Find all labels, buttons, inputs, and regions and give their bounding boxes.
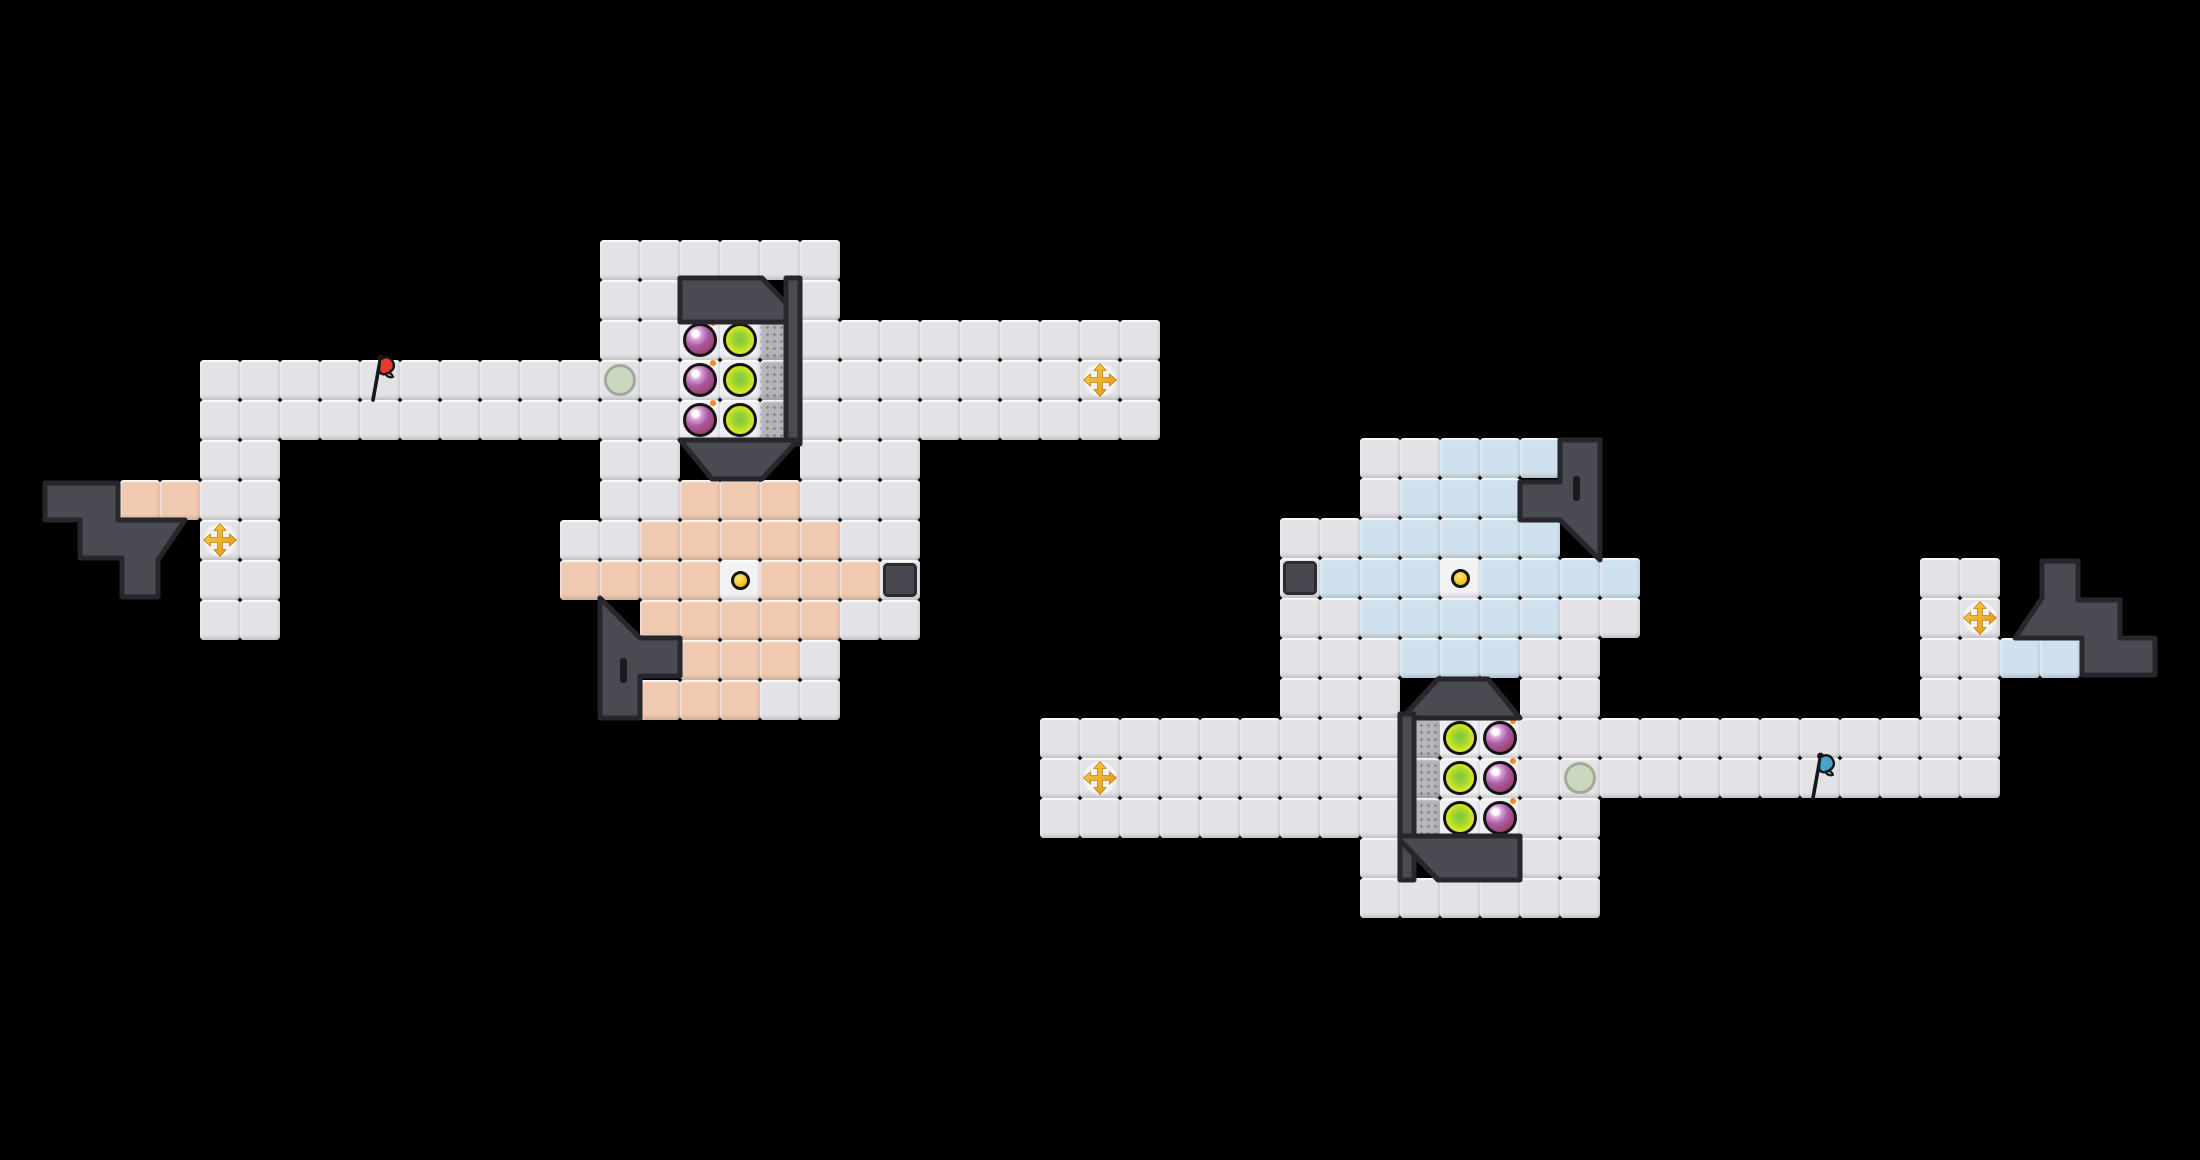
door-icon xyxy=(883,563,917,597)
blue-floor-tile xyxy=(1480,438,1520,478)
floor-tile xyxy=(1040,758,1080,798)
blue-floor-tile xyxy=(1400,638,1440,678)
floor-tile xyxy=(1560,638,1600,678)
blue-floor-tile xyxy=(1360,558,1400,598)
floor-tile xyxy=(1360,678,1400,718)
button-orb-icon xyxy=(723,403,757,437)
floor-tile xyxy=(800,280,840,320)
floor-tile xyxy=(1320,638,1360,678)
floor-tile xyxy=(240,360,280,400)
blue-floor-tile xyxy=(1360,598,1400,638)
floor-tile xyxy=(960,400,1000,440)
button-orb[interactable] xyxy=(720,400,760,440)
floor-tile xyxy=(960,360,1000,400)
flag-red[interactable] xyxy=(358,348,402,404)
floor-tile xyxy=(200,480,240,520)
floor-tile xyxy=(400,400,440,440)
blue-floor-tile xyxy=(1480,638,1520,678)
floor-tile xyxy=(1120,718,1160,758)
floor-tile xyxy=(640,320,680,360)
floor-tile xyxy=(520,400,560,440)
floor-tile xyxy=(1880,718,1920,758)
floor-tile xyxy=(1520,638,1560,678)
pink-floor-tile xyxy=(120,480,160,520)
pink-floor-tile xyxy=(680,600,720,640)
bomb-orb[interactable] xyxy=(680,320,720,360)
floor-tile xyxy=(1680,718,1720,758)
floor-tile xyxy=(1720,758,1760,798)
pink-floor-tile xyxy=(680,640,720,680)
wall-slit xyxy=(1573,476,1580,501)
pink-floor-tile xyxy=(720,640,760,680)
blue-floor-tile xyxy=(1480,598,1520,638)
floor-tile xyxy=(1920,758,1960,798)
target-dot-tile[interactable] xyxy=(1440,558,1480,598)
door-tile[interactable] xyxy=(1280,558,1320,598)
pink-floor-tile xyxy=(760,480,800,520)
floor-tile xyxy=(1880,758,1920,798)
floor-tile xyxy=(240,440,280,480)
spawn-pad-circle xyxy=(1564,762,1596,794)
floor-tile xyxy=(1560,878,1600,918)
pink-floor-tile xyxy=(640,600,680,640)
move-cross-icon[interactable] xyxy=(1080,360,1120,400)
spawn-pad[interactable] xyxy=(604,364,636,396)
floor-tile xyxy=(1760,758,1800,798)
floor-tile xyxy=(840,480,880,520)
bomb-orb[interactable] xyxy=(1480,798,1520,838)
bomb-orb-icon xyxy=(683,323,717,357)
pink-floor-tile xyxy=(680,560,720,600)
bomb-orb[interactable] xyxy=(1480,718,1520,758)
floor-tile xyxy=(1360,838,1400,878)
floor-tile xyxy=(1720,718,1760,758)
floor-tile xyxy=(1040,718,1080,758)
floor-tile xyxy=(1520,718,1560,758)
move-cross-icon[interactable] xyxy=(1080,758,1120,798)
floor-tile xyxy=(960,320,1000,360)
pink-floor-tile xyxy=(680,680,720,720)
pink-floor-tile xyxy=(640,680,680,720)
machine-top-wall xyxy=(680,278,800,322)
floor-tile xyxy=(240,560,280,600)
floor-tile xyxy=(1520,838,1560,878)
spawn-pad[interactable] xyxy=(1564,762,1596,794)
floor-tile xyxy=(1520,798,1560,838)
button-orb[interactable] xyxy=(1440,798,1480,838)
floor-tile xyxy=(600,320,640,360)
floor-tile xyxy=(200,600,240,640)
floor-tile xyxy=(1600,758,1640,798)
bomb-orb-icon xyxy=(1483,761,1517,795)
floor-tile xyxy=(1160,798,1200,838)
button-orb-icon xyxy=(723,363,757,397)
pink-floor-tile xyxy=(760,640,800,680)
floor-tile xyxy=(280,360,320,400)
floor-tile xyxy=(760,680,800,720)
pink-floor-tile xyxy=(720,480,760,520)
floor-tile xyxy=(920,360,960,400)
floor-tile xyxy=(520,360,560,400)
floor-tile xyxy=(1320,758,1360,798)
floor-tile xyxy=(400,360,440,400)
floor-tile xyxy=(1200,758,1240,798)
pink-floor-tile xyxy=(560,560,600,600)
blue-floor-tile xyxy=(1320,558,1360,598)
floor-tile xyxy=(1120,798,1160,838)
floor-tile xyxy=(240,480,280,520)
floor-tile xyxy=(880,320,920,360)
floor-tile xyxy=(600,400,640,440)
floor-tile xyxy=(1120,320,1160,360)
floor-tile xyxy=(560,400,600,440)
floor-tile xyxy=(640,280,680,320)
floor-tile xyxy=(1760,718,1800,758)
floor-tile xyxy=(1120,400,1160,440)
floor-tile xyxy=(840,400,880,440)
floor-tile xyxy=(560,360,600,400)
floor-tile xyxy=(800,400,840,440)
floor-tile xyxy=(800,640,840,680)
bomb-orb[interactable] xyxy=(680,400,720,440)
floor-tile xyxy=(1560,798,1600,838)
flag-blue[interactable] xyxy=(1798,746,1842,802)
blue-floor-tile xyxy=(1440,638,1480,678)
floor-tile xyxy=(600,520,640,560)
floor-tile xyxy=(1400,438,1440,478)
floor-tile xyxy=(1360,438,1400,478)
floor-tile xyxy=(1360,718,1400,758)
floor-tile xyxy=(1080,320,1120,360)
blue-floor-tile xyxy=(1400,598,1440,638)
floor-tile xyxy=(640,440,680,480)
floor-tile xyxy=(880,520,920,560)
floor-tile xyxy=(1920,598,1960,638)
floor-tile xyxy=(560,520,600,560)
floor-tile xyxy=(840,320,880,360)
floor-tile xyxy=(840,600,880,640)
pink-floor-tile xyxy=(160,480,200,520)
pink-floor-tile xyxy=(800,520,840,560)
floor-tile xyxy=(1280,798,1320,838)
floor-tile xyxy=(1040,320,1080,360)
floor-tile xyxy=(920,320,960,360)
floor-tile xyxy=(1080,718,1120,758)
floor-tile xyxy=(840,360,880,400)
floor-tile xyxy=(1560,718,1600,758)
floor-tile xyxy=(1960,718,2000,758)
floor-tile xyxy=(1960,758,2000,798)
floor-tile xyxy=(680,240,720,280)
floor-tile xyxy=(1600,718,1640,758)
floor-tile xyxy=(880,440,920,480)
spawn-pad-circle xyxy=(604,364,636,396)
floor-tile xyxy=(1280,598,1320,638)
floor-tile xyxy=(280,400,320,440)
pink-floor-tile xyxy=(720,680,760,720)
floor-tile xyxy=(200,440,240,480)
blue-floor-tile xyxy=(2040,638,2080,678)
floor-tile xyxy=(1120,758,1160,798)
floor-tile xyxy=(1360,638,1400,678)
machine-panel-tile xyxy=(1400,758,1440,798)
floor-tile xyxy=(1640,758,1680,798)
floor-tile xyxy=(320,360,360,400)
floor-tile xyxy=(880,480,920,520)
floor-tile xyxy=(1640,718,1680,758)
floor-tile xyxy=(200,360,240,400)
pink-floor-tile xyxy=(640,520,680,560)
floor-tile xyxy=(1000,400,1040,440)
floor-tile xyxy=(720,240,760,280)
blue-floor-tile xyxy=(1520,558,1560,598)
pink-floor-tile xyxy=(800,600,840,640)
target-dot-tile[interactable] xyxy=(720,560,760,600)
machine-bottom-wall xyxy=(1400,836,1520,880)
machine-bottom-wall xyxy=(680,440,798,479)
floor-tile xyxy=(880,360,920,400)
blue-floor-tile xyxy=(1520,598,1560,638)
blue-floor-tile xyxy=(1440,478,1480,518)
blue-floor-tile xyxy=(1560,558,1600,598)
floor-tile xyxy=(800,440,840,480)
floor-tile xyxy=(1280,638,1320,678)
floor-tile xyxy=(1920,678,1960,718)
floor-tile xyxy=(1320,598,1360,638)
blue-floor-tile xyxy=(1520,518,1560,558)
floor-tile xyxy=(1320,718,1360,758)
floor-tile xyxy=(1240,718,1280,758)
blue-floor-tile xyxy=(1520,438,1560,478)
floor-tile xyxy=(920,400,960,440)
floor-tile xyxy=(240,600,280,640)
blue-floor-tile xyxy=(1440,438,1480,478)
floor-tile xyxy=(1360,798,1400,838)
move-cross-icon[interactable] xyxy=(200,520,240,560)
pink-floor-tile xyxy=(720,520,760,560)
floor-tile xyxy=(1320,678,1360,718)
bomb-orb[interactable] xyxy=(680,360,720,400)
floor-tile xyxy=(600,440,640,480)
floor-tile xyxy=(1200,798,1240,838)
floor-tile xyxy=(800,360,840,400)
floor-tile xyxy=(640,240,680,280)
button-orb[interactable] xyxy=(720,360,760,400)
pink-floor-tile xyxy=(760,520,800,560)
wall-structures-right xyxy=(0,0,2200,1160)
floor-tile xyxy=(800,320,840,360)
blue-floor-tile xyxy=(1480,478,1520,518)
button-orb-icon xyxy=(1443,761,1477,795)
floor-tile xyxy=(840,440,880,480)
floor-tile xyxy=(800,240,840,280)
floor-tile xyxy=(640,400,680,440)
floor-tile xyxy=(1040,360,1080,400)
floor-tile xyxy=(800,680,840,720)
floor-tile xyxy=(1320,518,1360,558)
blue-floor-tile xyxy=(1600,558,1640,598)
floor-tile xyxy=(1560,838,1600,878)
floor-tile xyxy=(1480,878,1520,918)
blue-floor-tile xyxy=(1440,518,1480,558)
button-orb[interactable] xyxy=(1440,718,1480,758)
floor-tile xyxy=(1960,678,2000,718)
blue-floor-tile xyxy=(1360,518,1400,558)
blue-floor-tile xyxy=(1480,518,1520,558)
floor-tile xyxy=(1520,878,1560,918)
game-canvas xyxy=(0,0,2200,1160)
floor-tile xyxy=(360,400,400,440)
machine-panel-tile xyxy=(1400,718,1440,758)
floor-tile xyxy=(1000,360,1040,400)
button-orb-icon xyxy=(723,323,757,357)
pink-floor-tile xyxy=(760,600,800,640)
floor-tile xyxy=(240,400,280,440)
floor-tile xyxy=(1560,678,1600,718)
bomb-orb-icon xyxy=(683,363,717,397)
floor-tile xyxy=(1360,758,1400,798)
blue-floor-tile xyxy=(2000,638,2040,678)
floor-tile xyxy=(1920,558,1960,598)
floor-tile xyxy=(1440,878,1480,918)
floor-tile xyxy=(480,400,520,440)
yellow-dot-icon xyxy=(731,571,750,590)
floor-tile xyxy=(1200,718,1240,758)
pink-floor-tile xyxy=(720,600,760,640)
pink-floor-tile xyxy=(640,560,680,600)
floor-tile xyxy=(1520,758,1560,798)
door-icon xyxy=(1283,561,1317,595)
floor-tile xyxy=(1280,678,1320,718)
floor-tile xyxy=(1040,400,1080,440)
floor-tile xyxy=(800,480,840,520)
move-cross-icon[interactable] xyxy=(1960,598,2000,638)
floor-tile xyxy=(600,280,640,320)
bomb-orb-icon xyxy=(1483,801,1517,835)
wall-slit xyxy=(620,658,627,683)
floor-tile xyxy=(240,520,280,560)
floor-tile xyxy=(1040,798,1080,838)
blue-floor-tile xyxy=(1400,478,1440,518)
floor-tile xyxy=(1960,638,2000,678)
floor-tile xyxy=(1920,638,1960,678)
floor-tile xyxy=(1600,598,1640,638)
blue-floor-tile xyxy=(1400,558,1440,598)
floor-tile xyxy=(880,400,920,440)
floor-tile xyxy=(1280,718,1320,758)
floor-tile xyxy=(1840,718,1880,758)
floor-tile xyxy=(440,400,480,440)
machine-panel-tile xyxy=(760,320,800,360)
floor-tile xyxy=(760,240,800,280)
pink-floor-tile xyxy=(680,520,720,560)
floor-tile xyxy=(1960,558,2000,598)
floor-tile xyxy=(1000,320,1040,360)
floor-tile xyxy=(640,360,680,400)
blue-floor-tile xyxy=(1480,558,1520,598)
yellow-dot-icon xyxy=(1451,569,1470,588)
door-tile[interactable] xyxy=(880,560,920,600)
pink-floor-tile xyxy=(840,560,880,600)
floor-tile xyxy=(880,600,920,640)
floor-tile xyxy=(1680,758,1720,798)
floor-tile xyxy=(1560,598,1600,638)
floor-tile xyxy=(1400,878,1440,918)
floor-tile xyxy=(1160,718,1200,758)
button-orb-icon xyxy=(1443,801,1477,835)
floor-tile xyxy=(1840,758,1880,798)
floor-tile xyxy=(440,360,480,400)
floor-tile xyxy=(1080,798,1120,838)
floor-tile xyxy=(320,400,360,440)
floor-tile xyxy=(1080,400,1120,440)
floor-tile xyxy=(1920,718,1960,758)
floor-tile xyxy=(200,560,240,600)
machine-panel-tile xyxy=(760,400,800,440)
floor-tile xyxy=(640,480,680,520)
floor-tile xyxy=(1360,478,1400,518)
floor-tile xyxy=(1240,798,1280,838)
pink-floor-tile xyxy=(760,560,800,600)
bomb-orb-icon xyxy=(1483,721,1517,755)
floor-tile xyxy=(600,240,640,280)
machine-top-wall xyxy=(1402,679,1520,718)
pink-floor-tile xyxy=(600,560,640,600)
floor-tile xyxy=(1320,798,1360,838)
machine-panel-tile xyxy=(760,360,800,400)
floor-tile xyxy=(1280,758,1320,798)
floor-tile xyxy=(200,400,240,440)
wall-structures-left xyxy=(0,0,2200,1160)
floor-tile xyxy=(1120,360,1160,400)
blue-floor-tile xyxy=(1400,518,1440,558)
button-orb[interactable] xyxy=(1440,758,1480,798)
floor-tile xyxy=(1520,678,1560,718)
bomb-orb[interactable] xyxy=(1480,758,1520,798)
floor-tile xyxy=(1240,758,1280,798)
floor-tile xyxy=(1160,758,1200,798)
floor-tile xyxy=(1360,878,1400,918)
floor-tile xyxy=(480,360,520,400)
bomb-orb-icon xyxy=(683,403,717,437)
button-orb-icon xyxy=(1443,721,1477,755)
machine-panel-tile xyxy=(1400,798,1440,838)
button-orb[interactable] xyxy=(720,320,760,360)
blue-floor-tile xyxy=(1440,598,1480,638)
pink-floor-tile xyxy=(680,480,720,520)
floor-tile xyxy=(1280,518,1320,558)
floor-tile xyxy=(600,480,640,520)
pink-floor-tile xyxy=(800,560,840,600)
floor-tile xyxy=(840,520,880,560)
